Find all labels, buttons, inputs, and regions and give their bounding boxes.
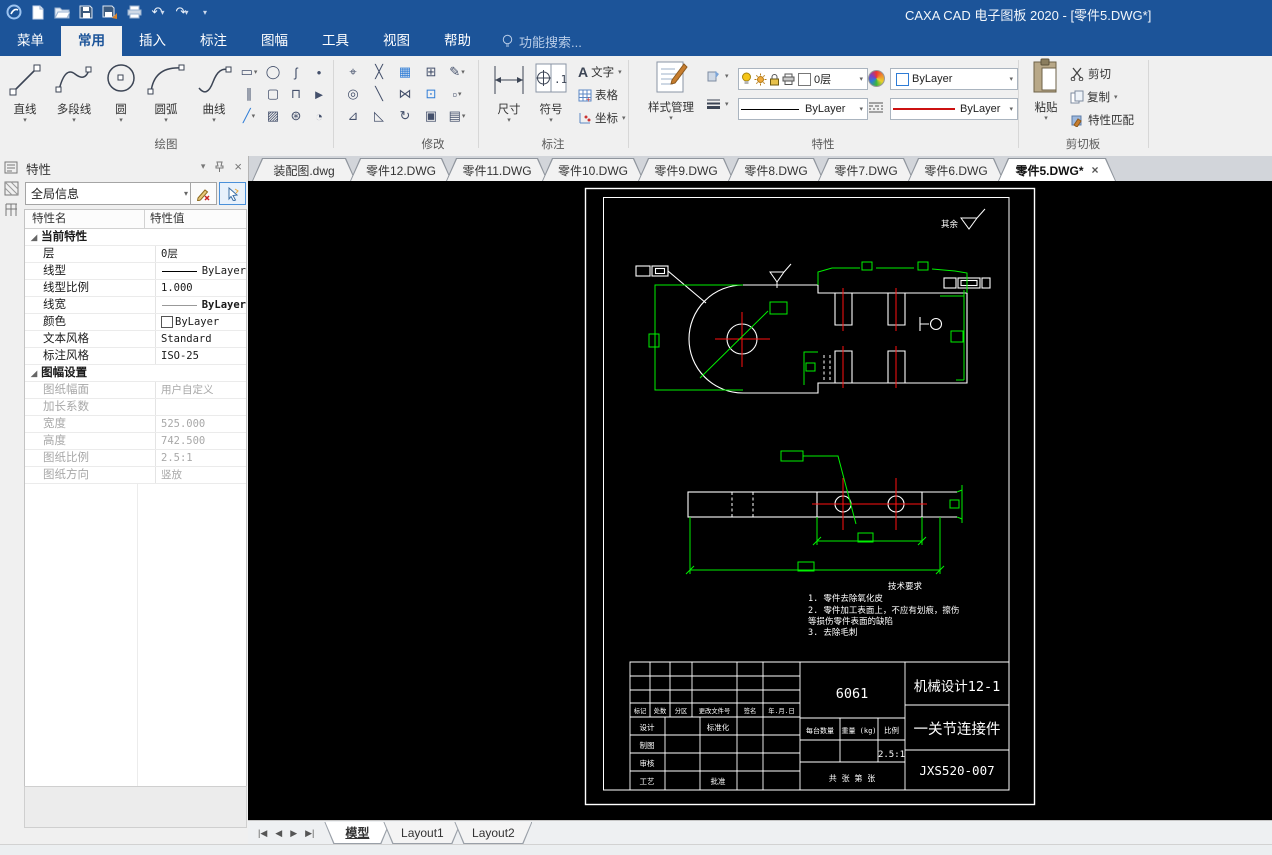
prop-row[interactable]: 加长系数 [25, 399, 246, 416]
svg-text:.1: .1 [554, 73, 567, 86]
properties-palette-icon[interactable] [3, 159, 20, 176]
chevron-down-icon[interactable]: ▾ [184, 8, 188, 17]
model-tab[interactable]: 模型 [324, 822, 390, 844]
close-icon[interactable]: × [234, 159, 242, 174]
svg-text:分区: 分区 [675, 706, 688, 715]
clip-tool-icon[interactable]: ⊞ [420, 62, 442, 82]
line-tool-label: 直线 [14, 101, 37, 117]
status-bar [0, 844, 1272, 855]
svg-text:更改文件号: 更改文件号 [699, 706, 730, 715]
array-tool-icon[interactable]: ▦ [394, 62, 416, 82]
doc-tab-7[interactable]: 零件6.DWG [908, 158, 1004, 181]
symbol-tool-button[interactable]: .1 符号 ▾ [530, 58, 572, 124]
style-brush-icon [706, 68, 721, 83]
cut-label: 剪切 [1088, 66, 1111, 82]
arc-tool-label: 圆弧 [155, 101, 178, 117]
titleblock-sheet: 共 张 第 张 [829, 773, 875, 783]
sketch-line-tool-icon[interactable]: ╱▾ [238, 106, 260, 126]
group-separator [333, 60, 334, 148]
chevron-down-icon[interactable]: ▾ [1044, 115, 1048, 122]
layer-lock-icon [769, 73, 780, 86]
polyline-tool-button[interactable]: 多段线 ▾ [46, 58, 102, 124]
lineweight-value: ByLayer [960, 103, 1000, 115]
dimension-tool-button[interactable]: 尺寸 ▾ [488, 58, 530, 124]
clipboard-group-label: 剪切板 [1066, 136, 1101, 152]
group-separator [1148, 60, 1149, 148]
curve-tool-button[interactable]: 曲线 ▾ [192, 58, 236, 124]
chevron-down-icon[interactable]: ▾ [212, 117, 216, 124]
group-separator [1018, 60, 1019, 148]
print-button[interactable] [124, 2, 144, 22]
table-header: 特性名 特性值 [25, 210, 246, 229]
annotate-group-label: 标注 [542, 136, 565, 152]
properties-panel: 特性 ▾ × 全局信息 ▾ 特性名 特性值 ◢当前特性 层0层 线型ByLaye… [0, 156, 249, 844]
color-wheel-icon[interactable] [868, 70, 885, 87]
hatch-tool-icon[interactable]: ▨ [262, 106, 284, 126]
group-separator [478, 60, 479, 148]
symbol-tool-label: 符号 [540, 101, 563, 117]
svg-text:技术要求: 技术要求 [888, 581, 923, 592]
trim-tool-icon[interactable]: ╳ [368, 62, 390, 82]
prop-row[interactable]: 宽度525.000 [25, 416, 246, 433]
title-bar: ↶▾ ↷▾ ▾ CAXA CAD 电子图板 2020 - [零件5.DWG*] [0, 0, 1272, 26]
svg-text:标记: 标记 [634, 706, 647, 715]
point-tool-icon[interactable]: • [308, 62, 330, 82]
rotate-tool-icon[interactable]: ↻ [394, 106, 416, 126]
titleblock-part-name: 一关节连接件 [914, 721, 1001, 738]
coord-tool-button[interactable]: 坐标 ▾ [578, 110, 626, 126]
arc-tool-button[interactable]: 圆弧 ▾ [140, 58, 192, 124]
close-icon[interactable]: × [1092, 163, 1099, 177]
prop-row[interactable]: 线宽ByLayer [25, 297, 246, 314]
doc-tab-4[interactable]: 零件9.DWG [638, 158, 734, 181]
collapse-icon[interactable]: ◢ [31, 233, 37, 242]
layout1-tab[interactable]: Layout1 [383, 822, 461, 844]
technical-requirements: 技术要求 1. 零件去除氧化皮 2. 零件加工表面上，不应有划痕，擦伤 等损伤零… [808, 581, 959, 638]
window-title: CAXA CAD 电子图板 2020 - [零件5.DWG*] [905, 5, 1151, 24]
match-properties-icon [1070, 113, 1085, 127]
rectangle-tool-icon[interactable]: ▭▾ [238, 62, 260, 82]
chevron-down-icon[interactable]: ▾ [669, 115, 673, 122]
cut-button[interactable]: 剪切 [1070, 66, 1111, 82]
chevron-down-icon[interactable]: ▾ [622, 114, 626, 122]
color-swatch [161, 316, 173, 328]
curve-tool-label: 曲线 [203, 101, 226, 117]
match-properties-button[interactable]: 特性匹配 [1070, 112, 1134, 128]
caxa-cad-window: ↶▾ ↷▾ ▾ CAXA CAD 电子图板 2020 - [零件5.DWG*] … [0, 0, 1272, 855]
doc-tab-5[interactable]: 零件8.DWG [728, 158, 824, 181]
title-block: 6061 机械设计12-1 一关节连接件 JXS520-007 标记 处数 分区… [630, 662, 1009, 790]
svg-text:2. 零件加工表面上，不应有划痕，擦伤: 2. 零件加工表面上，不应有划痕，擦伤 [808, 605, 959, 616]
props-group-label: 特性 [812, 136, 835, 152]
style-manager-label: 样式管理 [648, 99, 694, 115]
doc-tab-0[interactable]: 装配图.dwg [252, 158, 356, 181]
chevron-down-icon[interactable]: ▾ [507, 117, 511, 124]
table-tool-label: 表格 [595, 87, 618, 103]
chevron-down-icon[interactable]: ▾ [164, 117, 168, 124]
col-value-header[interactable]: 特性值 [145, 210, 246, 228]
stretch-tool-icon[interactable]: ⊡ [420, 84, 442, 104]
parallel-line-tool-icon[interactable]: ∥ [238, 84, 260, 104]
layout2-tab[interactable]: Layout2 [454, 822, 532, 844]
current-layer-value: 0层 [814, 71, 831, 87]
current-color-swatch [896, 73, 909, 86]
chevron-down-icon[interactable]: ▾ [549, 117, 553, 124]
pick-arrow-tool-icon[interactable]: ► [308, 84, 330, 104]
chevron-down-icon[interactable]: ▾ [72, 117, 76, 124]
lightbulb-icon [502, 34, 513, 49]
menu-bar: 菜单 常用 插入 标注 图幅 工具 视图 帮助 功能搜索... [0, 26, 1272, 56]
prop-group-row[interactable]: ◢当前特性 [25, 229, 246, 246]
copy-label: 复制 [1087, 89, 1110, 105]
chevron-down-icon[interactable]: ▾ [725, 72, 729, 80]
chevron-down-icon[interactable]: ▾ [23, 117, 27, 124]
coordinate-icon [578, 112, 592, 125]
dimension-tool-label: 尺寸 [498, 101, 521, 117]
svg-text:其余: 其余 [941, 219, 959, 230]
menu-tab-insert[interactable]: 插入 [122, 26, 183, 56]
menu-tab-view[interactable]: 视图 [366, 26, 427, 56]
palette-strip [1, 159, 21, 218]
scope-value: 全局信息 [31, 185, 79, 202]
chevron-down-icon[interactable]: ▾ [857, 75, 865, 83]
svg-text:年.月.日: 年.月.日 [768, 706, 794, 715]
table-tool-button[interactable]: + 表格 [578, 87, 618, 103]
undo-button[interactable]: ↶▾ [148, 2, 168, 22]
first-sheet-button[interactable]: |◀ [258, 828, 267, 839]
col-name-header[interactable]: 特性名 [25, 210, 145, 228]
quick-access-toolbar: ↶▾ ↷▾ ▾ [4, 2, 216, 22]
scale-tool-icon[interactable]: ▫▾ [446, 84, 468, 104]
svg-text:工艺: 工艺 [640, 777, 655, 786]
lineweight-combo[interactable]: ByLayer ▾ [890, 98, 1018, 120]
prop-group-row[interactable]: ◢图幅设置 [25, 365, 246, 382]
offset-tool-icon[interactable]: ◎ [342, 84, 364, 104]
svg-text:重量 (kg): 重量 (kg) [841, 727, 876, 735]
panel-footer [24, 786, 247, 828]
lineweight-icon [706, 98, 721, 109]
qat-customize-button[interactable]: ▾ [196, 2, 216, 22]
chevron-down-icon[interactable]: ▾ [1007, 105, 1015, 113]
modify-group-label: 修改 [422, 136, 445, 152]
doc-tab-1[interactable]: 零件12.DWG [350, 158, 452, 181]
scissors-icon [1070, 67, 1085, 81]
svg-text:批准: 批准 [711, 776, 726, 786]
draw-group-label: 绘图 [155, 136, 178, 152]
chevron-down-icon[interactable]: ▾ [1114, 93, 1118, 101]
prop-row[interactable]: 线型比例1.000 [25, 280, 246, 297]
layer-combo[interactable]: 0层 ▾ [738, 68, 868, 90]
style-manager-button[interactable]: 样式管理 ▾ [640, 58, 702, 122]
chevron-down-icon[interactable]: ▾ [201, 161, 206, 172]
edit-tool-icon[interactable]: ✎▾ [446, 62, 468, 82]
next-sheet-button[interactable]: ▶ [290, 828, 297, 839]
coord-tool-label: 坐标 [595, 110, 618, 126]
save-button[interactable] [76, 2, 96, 22]
titleblock-class: 机械设计12-1 [914, 679, 1001, 695]
svg-text:设计: 设计 [640, 722, 655, 732]
svg-text:等损伤零件表面的缺陷: 等损伤零件表面的缺陷 [808, 616, 893, 627]
titleblock-material: 6061 [836, 686, 869, 702]
search-placeholder: 功能搜索... [519, 32, 582, 51]
svg-text:每台数量: 每台数量 [806, 726, 834, 735]
prop-row[interactable]: 颜色ByLayer [25, 314, 246, 331]
chevron-down-icon[interactable]: ▾ [857, 105, 865, 113]
paste-label: 粘贴 [1035, 99, 1058, 115]
circle-tool-label: 圆 [115, 101, 127, 117]
chevron-down-icon[interactable]: ▾ [119, 117, 123, 124]
menu-tab-menu[interactable]: 菜单 [0, 26, 61, 56]
text-tool-button[interactable]: A 文字 ▾ [578, 64, 622, 80]
region-tool-icon[interactable]: ▢ [262, 84, 284, 104]
color-combo[interactable]: ByLayer ▾ [890, 68, 1018, 90]
collapse-icon[interactable]: ◢ [31, 369, 37, 378]
prop-row[interactable]: 高度742.500 [25, 433, 246, 450]
break-tool-icon[interactable]: ╲ [368, 84, 390, 104]
panel-title: 特性 ▾ × [26, 159, 246, 177]
titleblock-drawing-no: JXS520-007 [919, 763, 994, 778]
pick-object-button[interactable] [219, 182, 246, 205]
line-tool-button[interactable]: 直线 ▾ [4, 58, 46, 124]
prev-sheet-button[interactable]: ◀ [275, 828, 282, 839]
ellipse-tool-icon[interactable]: ◯ [262, 62, 284, 82]
prop-row[interactable]: 图纸比例2.5:1 [25, 450, 246, 467]
mirror-tool-icon[interactable]: ⋈ [394, 84, 416, 104]
gear-tool-icon[interactable]: ⊛ [285, 106, 307, 126]
table-icon: + [578, 89, 592, 102]
layer-plot-printer-icon [782, 73, 795, 85]
svg-text:制图: 制图 [640, 740, 655, 750]
library-palette-icon[interactable] [3, 180, 20, 197]
menu-tab-help[interactable]: 帮助 [427, 26, 488, 56]
svg-text:+: + [586, 95, 591, 102]
linetype-manager-icon[interactable] [868, 100, 884, 114]
column-divider [137, 484, 138, 786]
move-tool-icon[interactable]: ⌖ [342, 62, 364, 82]
new-file-button[interactable] [28, 2, 48, 22]
copy-button[interactable]: 复制 ▾ [1070, 89, 1118, 105]
function-search[interactable]: 功能搜索... [502, 26, 582, 56]
scope-combo[interactable]: 全局信息 ▾ [25, 182, 193, 205]
app-logo-icon [4, 2, 24, 22]
prop-row[interactable]: 图纸幅面用户自定义 [25, 382, 246, 399]
svg-text:审核: 审核 [640, 758, 655, 768]
open-file-button[interactable] [52, 2, 72, 22]
linetype-combo[interactable]: ByLayer ▾ [738, 98, 868, 120]
chevron-down-icon[interactable]: ▾ [1007, 75, 1015, 83]
extend-tool-icon[interactable]: ◺ [368, 106, 390, 126]
linetype-value: ByLayer [805, 103, 845, 115]
prop-row[interactable]: 图纸方向竖放 [25, 467, 246, 484]
chamfer-tool-icon[interactable]: ⊿ [342, 106, 364, 126]
ribbon: 直线 ▾ 多段线 ▾ 圆 ▾ 圆弧 ▾ 曲线 ▾ ▭▾ ◯ ʃ • ∥ ▢ ⊓ [0, 56, 1272, 157]
chevron-down-icon[interactable]: ▾ [160, 8, 164, 17]
region-edit-tool-icon[interactable]: ▤▾ [446, 106, 468, 126]
menu-tab-home[interactable]: 常用 [61, 26, 122, 56]
chevron-down-icon[interactable]: ▾ [618, 68, 622, 76]
menu-tab-tools[interactable]: 工具 [305, 26, 366, 56]
tools-palette-icon[interactable] [3, 201, 20, 218]
doc-tab-6[interactable]: 零件7.DWG [818, 158, 914, 181]
block-tool-icon[interactable]: ▣ [420, 106, 442, 126]
svg-text:比例: 比例 [884, 725, 899, 735]
layer-on-lightbulb-icon [741, 72, 752, 86]
layout-tab-bar: |◀ ◀ ▶ ▶| 模型 Layout1 Layout2 [248, 820, 1272, 845]
group-separator [628, 60, 629, 148]
circle-tool-button[interactable]: 圆 ▾ [102, 58, 140, 124]
view-top [636, 262, 990, 393]
prop-row[interactable]: 文本风格Standard [25, 331, 246, 348]
style-brush-button[interactable]: ▾ [706, 68, 729, 83]
menu-tab-sheet[interactable]: 图幅 [244, 26, 305, 56]
doc-tab-8-active[interactable]: 零件5.DWG*× [998, 158, 1116, 181]
prop-row[interactable]: 线型ByLayer [25, 263, 246, 280]
bolt-tool-icon[interactable]: ⊓ [285, 84, 307, 104]
doc-tab-3[interactable]: 零件10.DWG [542, 158, 644, 181]
view-front [686, 451, 962, 574]
redo-button[interactable]: ↷▾ [172, 2, 192, 22]
last-sheet-button[interactable]: ▶| [305, 828, 314, 839]
titleblock-scale-value: 2.5:1 [878, 750, 905, 760]
svg-text:签名: 签名 [744, 706, 757, 715]
spline-tool-icon[interactable]: ʃ [285, 62, 307, 82]
polyline-tool-label: 多段线 [57, 101, 92, 117]
prop-row[interactable]: 标注风格ISO-25 [25, 348, 246, 365]
pie-tool-icon[interactable]: ◔ [308, 106, 330, 126]
paste-button[interactable]: 粘贴 ▾ [1026, 58, 1066, 122]
text-tool-label: 文字 [591, 64, 614, 80]
surface-finish-note: 其余 [941, 209, 985, 230]
color-value: ByLayer [912, 73, 952, 85]
menu-tab-annotate[interactable]: 标注 [183, 26, 244, 56]
svg-text:处数: 处数 [654, 706, 667, 715]
chevron-down-icon[interactable]: ▾ [725, 100, 729, 108]
save-all-button[interactable] [100, 2, 120, 22]
pin-icon[interactable] [214, 161, 225, 173]
layer-color-swatch [798, 73, 811, 86]
clear-edit-button[interactable] [190, 182, 217, 205]
drawing-canvas[interactable]: 其余 [248, 181, 1272, 820]
properties-table: 特性名 特性值 ◢当前特性 层0层 线型ByLayer 线型比例1.000 线宽… [24, 209, 247, 787]
document-tab-bar: 装配图.dwg 零件12.DWG 零件11.DWG 零件10.DWG 零件9.D… [248, 156, 1272, 182]
svg-text:1. 零件去除氧化皮: 1. 零件去除氧化皮 [808, 593, 883, 604]
svg-text:标准化: 标准化 [707, 722, 730, 732]
lineweight-button[interactable]: ▾ [706, 98, 729, 109]
match-properties-label: 特性匹配 [1088, 112, 1134, 128]
copy-icon [1070, 90, 1084, 104]
prop-row[interactable]: 层0层 [25, 246, 246, 263]
doc-tab-2[interactable]: 零件11.DWG [446, 158, 548, 181]
svg-text:3. 去除毛刺: 3. 去除毛刺 [808, 627, 857, 638]
layer-freeze-sun-icon [754, 73, 767, 86]
text-icon: A [578, 64, 588, 80]
